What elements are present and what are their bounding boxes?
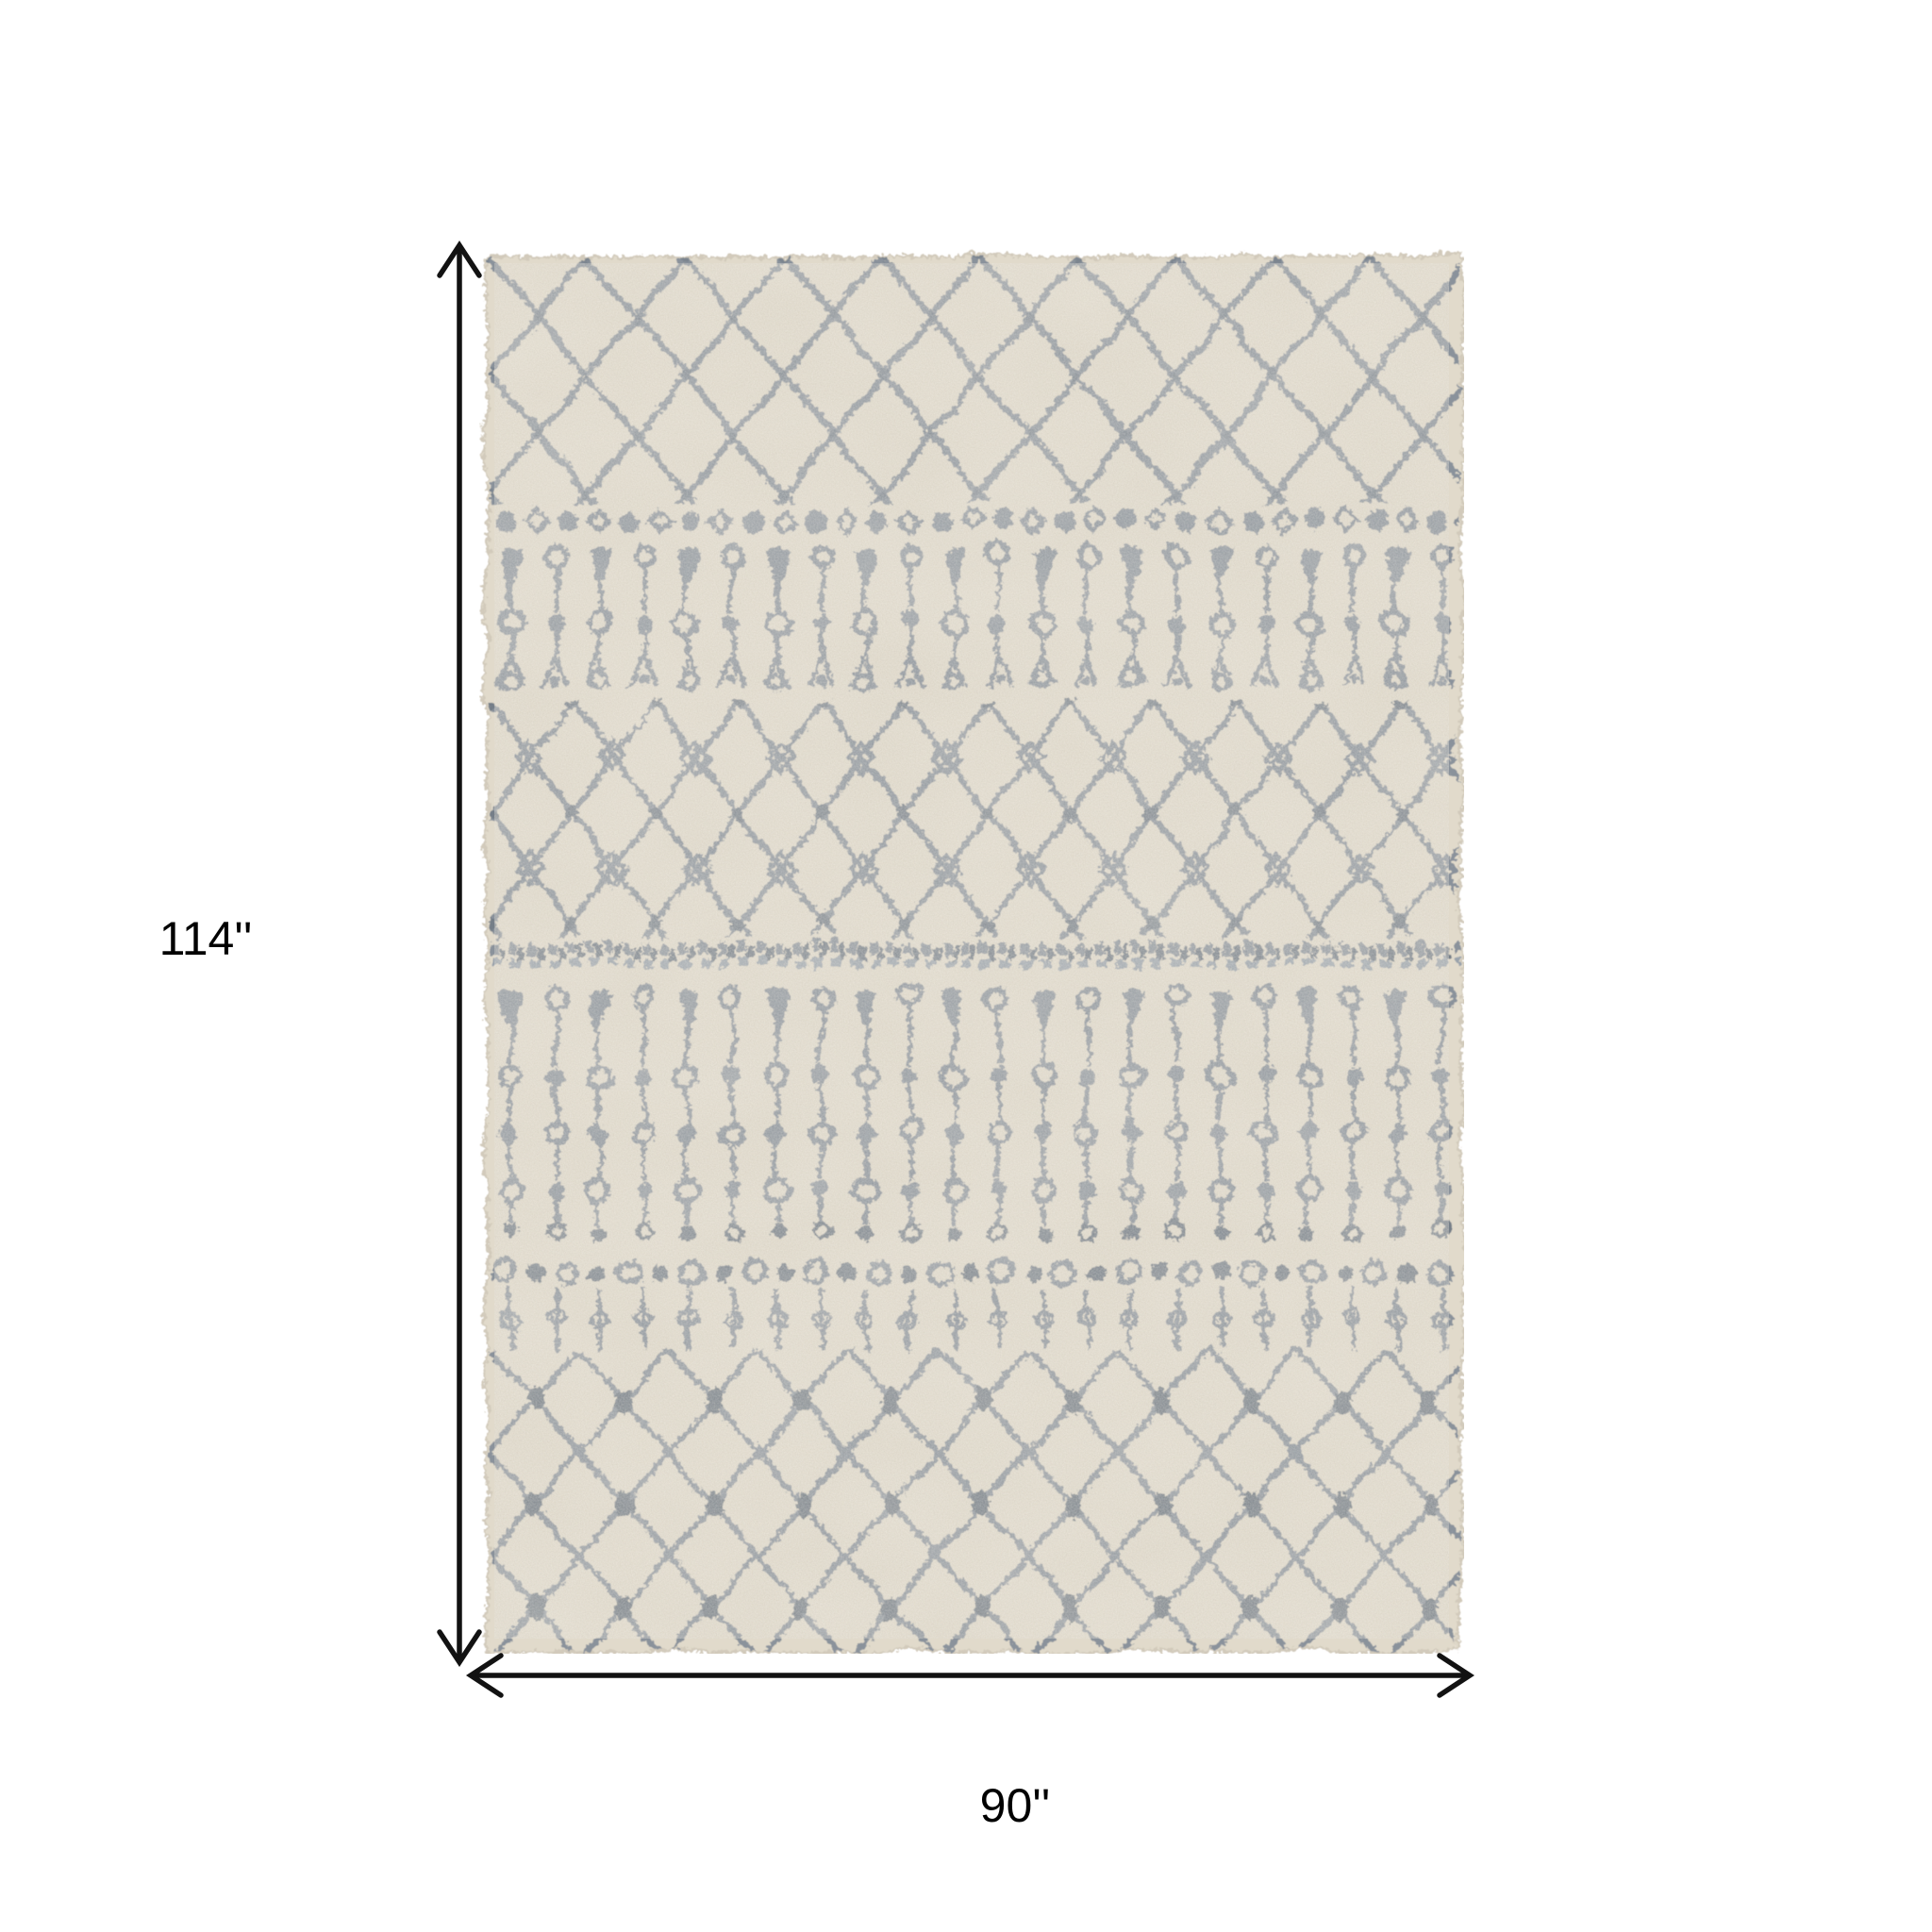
rug-image xyxy=(479,248,1464,1654)
height-dimension-label: 114'' xyxy=(149,914,262,963)
product-dimension-diagram: 114'' 90'' xyxy=(0,0,1932,1932)
width-dimension-label: 90'' xyxy=(970,1781,1060,1830)
